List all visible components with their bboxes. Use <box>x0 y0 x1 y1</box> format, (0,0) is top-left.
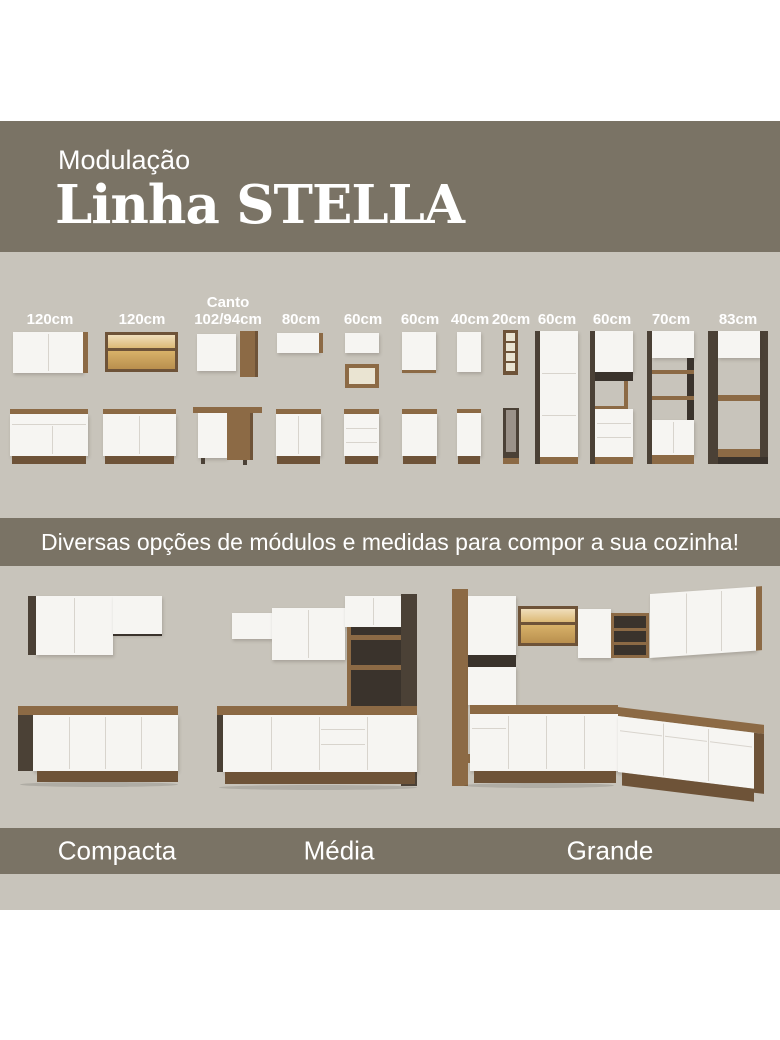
module-120cm-b <box>103 252 180 518</box>
module-60cm-b <box>402 252 437 518</box>
tall-tower-side <box>452 589 468 786</box>
upper-cabinet <box>457 332 481 372</box>
wall-cabinet-short <box>113 596 162 634</box>
countertop <box>18 706 178 715</box>
kitchen-media <box>217 566 418 806</box>
header-kicker: Modulação <box>58 145 190 175</box>
counter-doors-left <box>470 714 618 771</box>
module-40cm <box>457 252 482 518</box>
upper-cabinet <box>345 333 379 353</box>
tall-cabinet <box>540 331 578 457</box>
base-cabinet <box>10 414 88 456</box>
kitchen-label-compacta: Compacta <box>58 836 177 867</box>
surround-upper-cabinet <box>718 331 760 358</box>
wall-cabinet <box>578 609 611 658</box>
base-cabinet <box>457 413 481 456</box>
wall-cabinet <box>232 613 272 639</box>
module-80cm <box>276 252 325 518</box>
corner-base-cabinet <box>198 413 227 458</box>
banner-band: Diversas opções de módulos e medidas par… <box>0 518 780 566</box>
wall-cabinets-right <box>650 586 762 658</box>
page-title: Linha STELLA <box>55 177 464 233</box>
module-20cm <box>502 252 520 518</box>
kitchen-label-grande: Grande <box>567 836 654 867</box>
kitchen-labels-band: Compacta Média Grande <box>0 828 780 874</box>
module-canto <box>193 252 262 518</box>
header-band: Modulação Linha STELLA <box>0 121 780 252</box>
tower-upper-door <box>595 331 633 372</box>
kitchen-grande <box>450 566 765 806</box>
open-shelf <box>718 395 760 401</box>
tall-tower-door <box>468 596 516 655</box>
tower-niche <box>468 655 516 667</box>
upper-cabinet <box>277 333 319 353</box>
module-83cm-surround <box>708 252 768 518</box>
open-shelf <box>652 396 694 400</box>
corner-upper-cabinet <box>197 334 236 371</box>
counter-right-arm <box>618 707 764 805</box>
modules-section: 120cm 120cm Canto102/94cm 80cm 60cm 60cm… <box>0 252 780 518</box>
hutch-upper-cabinet <box>652 331 694 358</box>
drawer-cabinet <box>344 414 379 456</box>
base-cabinet <box>402 414 437 456</box>
product-image: Modulação Linha STELLA 120cm 120cm Canto… <box>0 0 780 1040</box>
module-60cm-a <box>344 252 381 518</box>
footer-gray-strip <box>0 874 780 910</box>
module-70cm-hutch <box>647 252 694 518</box>
kitchen-compacta <box>18 566 180 806</box>
countertop-left <box>470 705 618 714</box>
banner-text: Diversas opções de módulos e medidas par… <box>41 529 739 556</box>
module-60cm-tall-pantry <box>535 252 578 518</box>
counter-doors <box>223 715 417 772</box>
countertop <box>217 706 417 715</box>
module-120cm-a <box>10 252 90 518</box>
module-60cm-oven-tower <box>590 252 633 518</box>
kitchen-label-media: Média <box>304 836 375 867</box>
open-shelf <box>652 370 694 374</box>
upper-cabinet <box>402 332 436 370</box>
tower-drawers <box>595 409 633 457</box>
kitchens-section <box>0 566 780 828</box>
